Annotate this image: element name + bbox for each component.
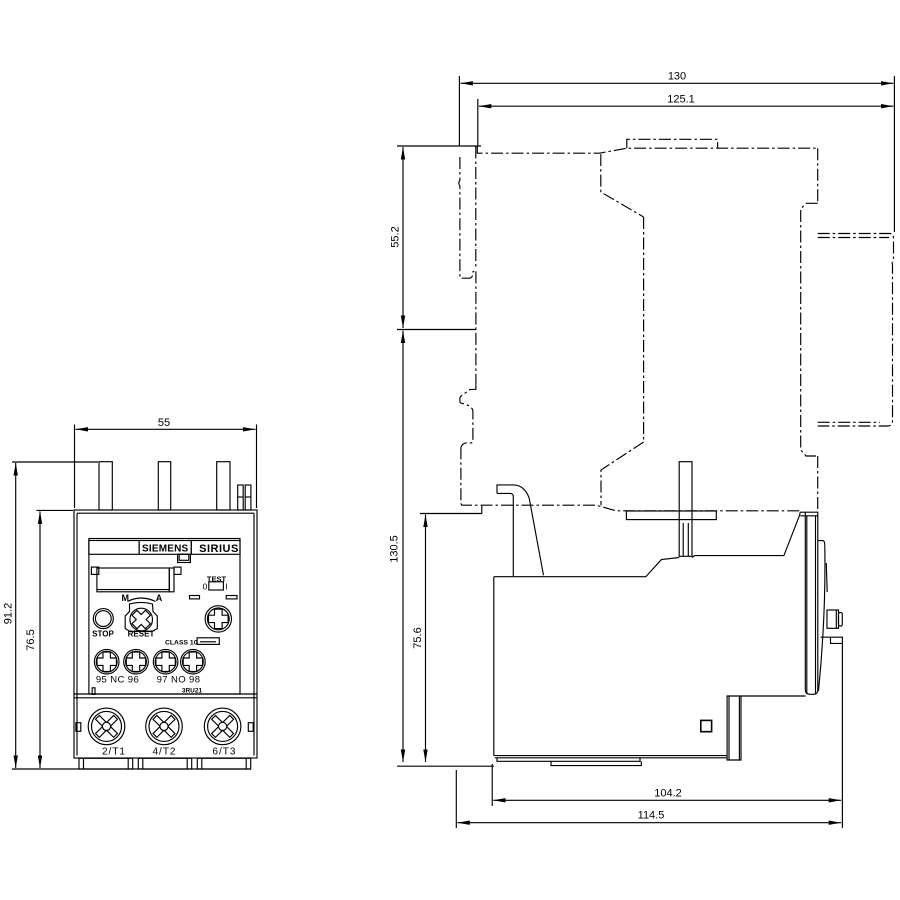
- svg-text:STOP: STOP: [92, 630, 114, 639]
- svg-text:4/T2: 4/T2: [152, 747, 176, 758]
- svg-text:130.5: 130.5: [389, 535, 401, 563]
- svg-text:SIRIUS: SIRIUS: [199, 543, 239, 555]
- svg-text:95 NC 96: 95 NC 96: [96, 675, 139, 686]
- svg-text:125.1: 125.1: [667, 94, 695, 106]
- svg-text:55.2: 55.2: [390, 226, 402, 247]
- svg-text:97 NO 98: 97 NO 98: [157, 675, 201, 686]
- svg-text:76.5: 76.5: [25, 629, 37, 650]
- svg-text:75.6: 75.6: [412, 627, 424, 648]
- svg-text:RESET: RESET: [128, 630, 155, 639]
- svg-text:55: 55: [158, 417, 170, 429]
- svg-text:I: I: [225, 582, 227, 592]
- svg-text:104.2: 104.2: [654, 788, 682, 800]
- svg-text:91.2: 91.2: [3, 603, 15, 624]
- svg-text:SIEMENS: SIEMENS: [142, 544, 189, 555]
- svg-text:130: 130: [668, 71, 686, 83]
- svg-text:2/T1: 2/T1: [102, 747, 126, 758]
- svg-text:CLASS 10: CLASS 10: [165, 639, 198, 646]
- svg-text:6/T3: 6/T3: [212, 747, 236, 758]
- svg-text:114.5: 114.5: [638, 810, 665, 822]
- svg-text:A: A: [156, 593, 163, 603]
- svg-text:0: 0: [203, 582, 208, 592]
